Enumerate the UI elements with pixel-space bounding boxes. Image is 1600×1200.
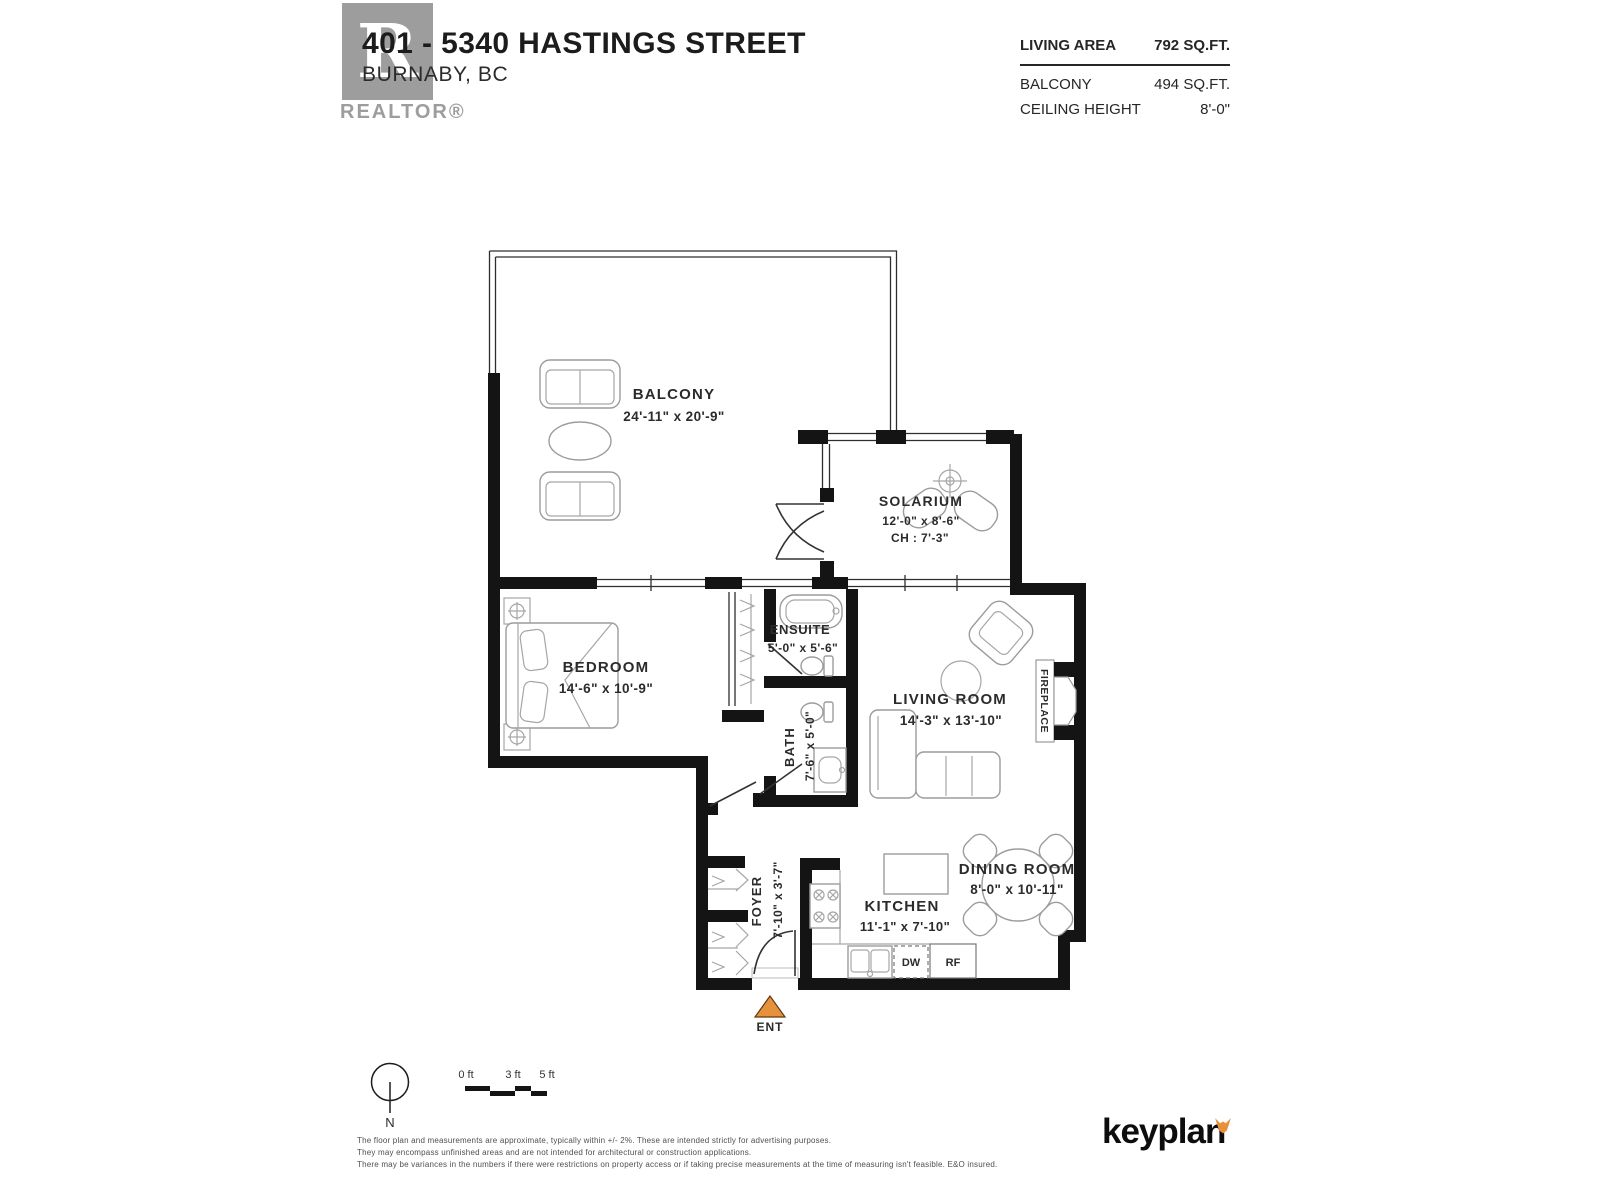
bath-label: BATH	[782, 727, 797, 767]
ensuite-dims: 5'-0" x 5'-6"	[768, 641, 838, 655]
scale-0ft: 0 ft	[458, 1069, 473, 1081]
disclaimer-line-3: There may be variances in the numbers if…	[357, 1159, 1117, 1171]
bedroom-dims: 14'-6" x 10'-9"	[559, 681, 653, 696]
kitchen-dims: 11'-1" x 7'-10"	[860, 919, 950, 934]
entry-marker: ENT	[755, 996, 785, 1034]
kitchen-label: KITCHEN	[864, 898, 939, 915]
kitchen-sink	[848, 946, 892, 978]
balcony-dims: 24'-11" x 20'-9"	[623, 409, 724, 424]
scale-bar: 0 ft 3 ft 5 ft	[458, 1069, 554, 1096]
bedroom-label: BEDROOM	[563, 659, 650, 676]
floor-plan-page: R REALTOR® 401 - 5340 HASTINGS STREET BU…	[0, 0, 1600, 1200]
compass-label: N	[385, 1115, 394, 1130]
fireplace-label: FIREPLACE	[1038, 669, 1050, 733]
foyer-label: FOYER	[749, 876, 764, 927]
stat-balcony: BALCONY 494 SQ.FT.	[1020, 75, 1230, 94]
stat-living-area: LIVING AREA 792 SQ.FT.	[1020, 36, 1230, 66]
refrigerator-label: RF	[946, 957, 961, 969]
solarium-dims: 12'-0" x 8'-6"	[882, 514, 959, 528]
kitchen-fixtures: DW RF	[810, 854, 976, 978]
dining-room-dims: 8'-0" x 10'-11"	[970, 882, 1064, 897]
bedroom-door	[710, 782, 756, 806]
fireplace: FIREPLACE	[1036, 660, 1076, 742]
stat-balcony-value: 494 SQ.FT.	[1154, 75, 1230, 94]
living-room-label: LIVING ROOM	[893, 691, 1007, 708]
living-room-dims: 14'-3" x 13'-10"	[900, 713, 1002, 728]
stat-balcony-label: BALCONY	[1020, 75, 1092, 94]
page-subtitle: BURNABY, BC	[362, 63, 508, 87]
stat-living-area-label: LIVING AREA	[1020, 36, 1116, 55]
page-title: 401 - 5340 HASTINGS STREET	[362, 27, 806, 61]
firebox	[1054, 677, 1076, 725]
stat-ceiling-value: 8'-0"	[1200, 100, 1230, 119]
vanity-sink	[814, 748, 846, 792]
realtor-wordmark: REALTOR®	[340, 101, 466, 124]
ensuite-label: ENSUITE	[770, 622, 831, 637]
kitchen-island	[884, 854, 948, 894]
solarium-ceiling: CH : 7'-3"	[891, 531, 949, 545]
floor-plan-svg: FIREPLACE DW	[0, 0, 1600, 1200]
stat-ceiling-label: CEILING HEIGHT	[1020, 100, 1141, 119]
refrigerator: RF	[930, 944, 976, 978]
nightstand	[504, 598, 530, 624]
toilet	[801, 656, 833, 676]
foyer-dims: 7'-10" x 3'-7"	[771, 861, 785, 938]
dishwasher: DW	[894, 946, 928, 978]
stove	[810, 884, 840, 928]
fox-icon	[1214, 1117, 1232, 1135]
french-doors-solarium	[776, 504, 824, 559]
disclaimer-line-2: They may encompass unfinished areas and …	[357, 1147, 1117, 1159]
keyplan-wordmark: keyplan	[1102, 1112, 1225, 1151]
entry-triangle-icon	[755, 996, 785, 1017]
disclaimer-line-1: The floor plan and measurements are appr…	[357, 1135, 1117, 1147]
disclaimer: The floor plan and measurements are appr…	[357, 1135, 1117, 1171]
area-stats: LIVING AREA 792 SQ.FT. BALCONY 494 SQ.FT…	[1020, 36, 1230, 119]
stat-ceiling: CEILING HEIGHT 8'-0"	[1020, 100, 1230, 119]
dishwasher-label: DW	[902, 957, 921, 969]
stat-living-area-value: 792 SQ.FT.	[1154, 36, 1230, 55]
balcony-furniture	[540, 360, 620, 520]
balcony-label: BALCONY	[633, 386, 716, 403]
north-compass-icon: N	[372, 1064, 409, 1131]
bedroom-closet	[740, 594, 754, 704]
balcony-table	[549, 422, 611, 460]
solarium-label: SOLARIUM	[879, 493, 963, 509]
entry-label: ENT	[757, 1020, 784, 1034]
keyplan-logo: keyplan	[1102, 1112, 1225, 1152]
scale-3ft: 3 ft	[505, 1069, 520, 1081]
scale-5ft: 5 ft	[539, 1069, 554, 1081]
dining-room-label: DINING ROOM	[959, 861, 1076, 878]
armchair	[964, 596, 1037, 669]
bath-dims: 7'-6" x 5'-0"	[803, 711, 817, 781]
